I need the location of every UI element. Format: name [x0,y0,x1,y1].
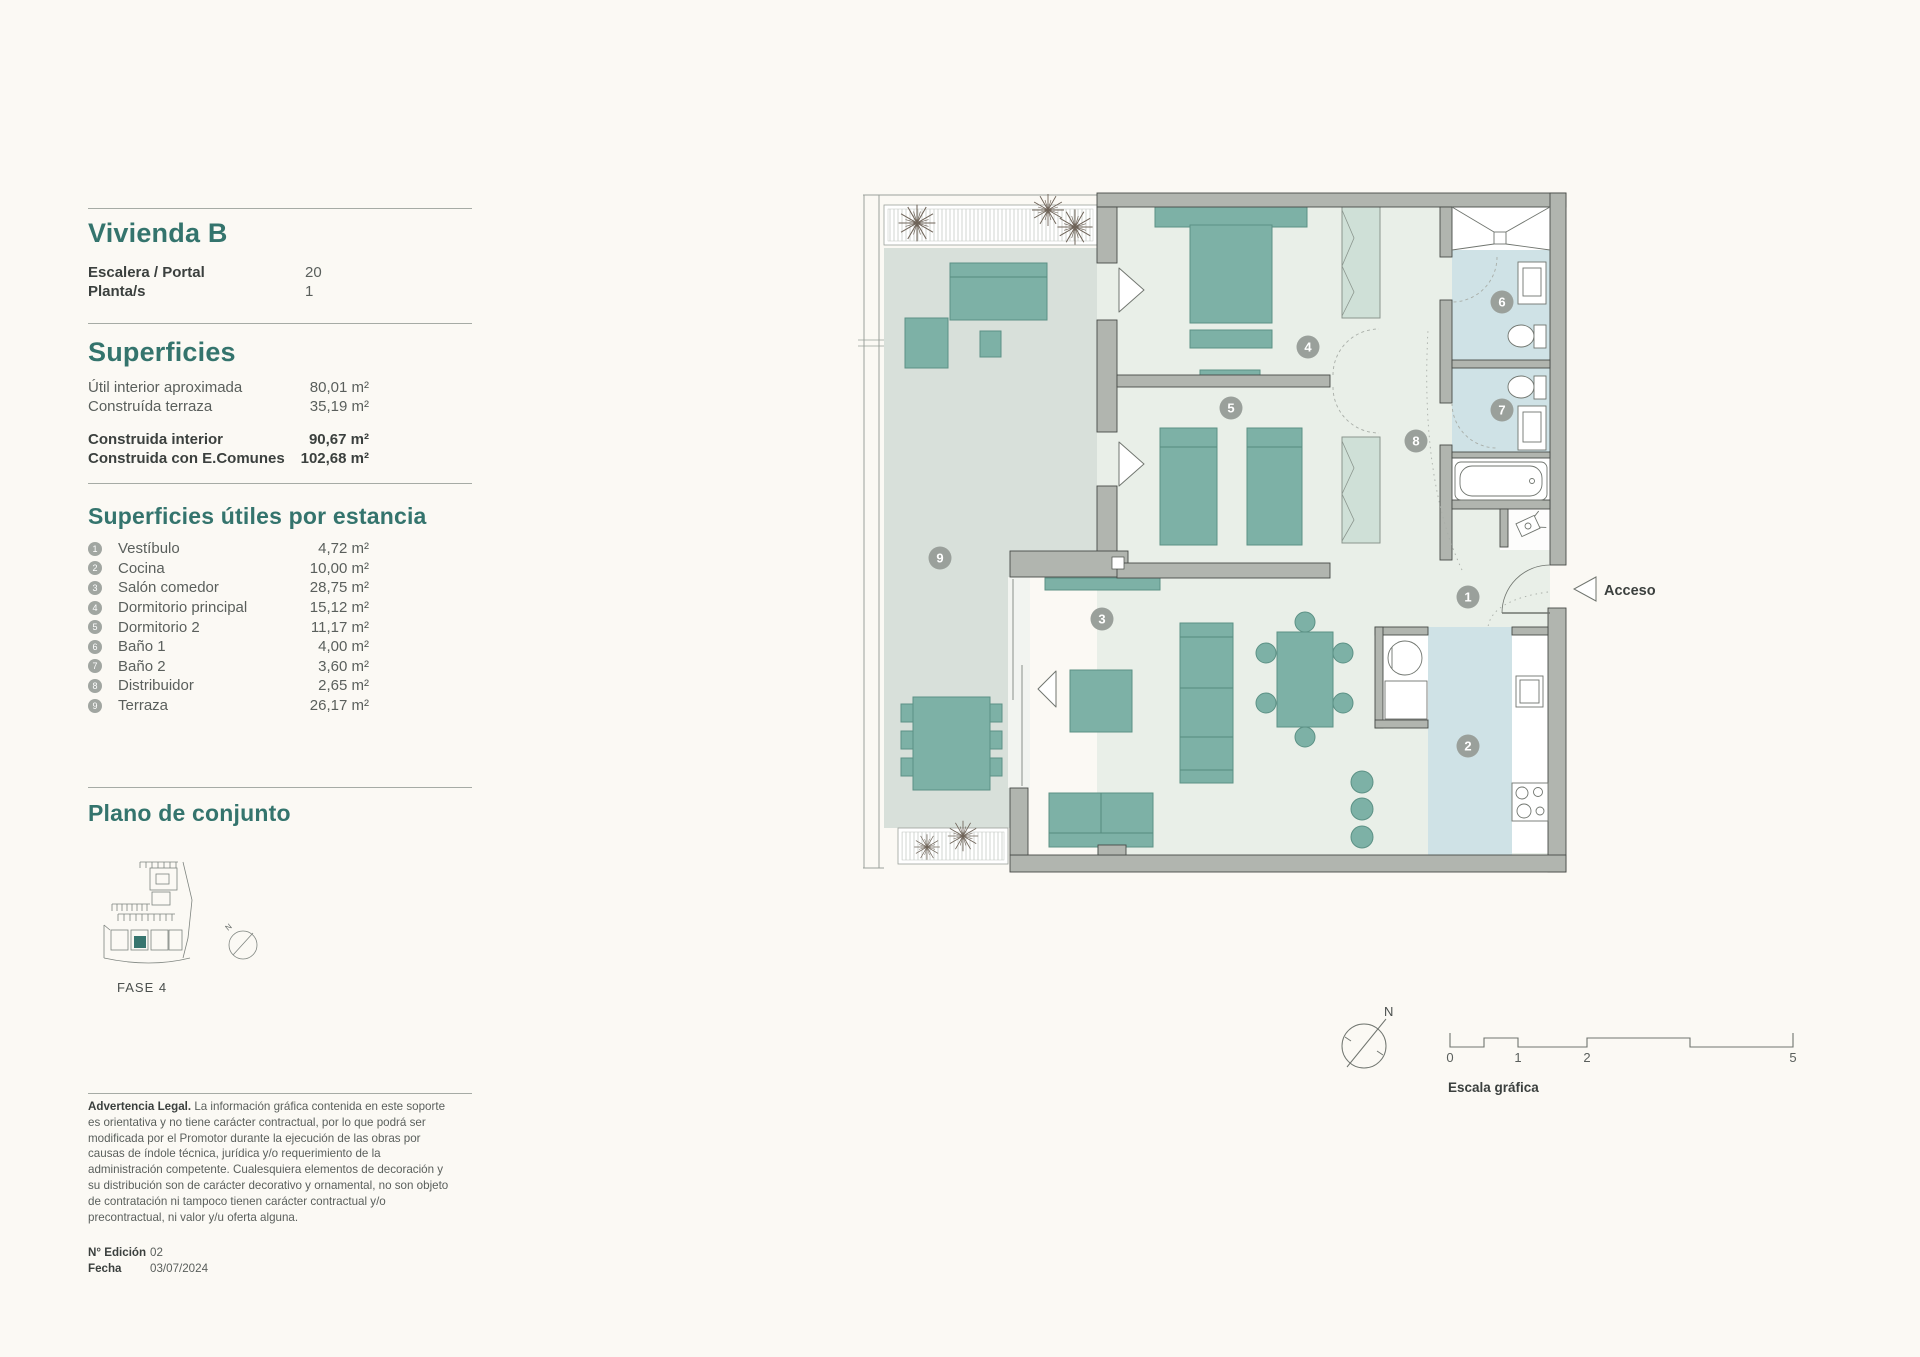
wall-step-notch [1112,557,1124,569]
surfaces-rows: Útil interior aproximada80,01 m² Constru… [88,378,369,416]
dining-chair [1295,612,1315,632]
room-label: Salón comedor [118,579,310,596]
svg-text:4: 4 [1304,340,1312,355]
info-label: Planta/s [88,282,305,301]
basin-bath2 [1518,406,1546,450]
wall-bed5-bottom [1117,563,1330,578]
surface-label: Construída terraza [88,397,212,416]
wall-left-b [1097,320,1117,432]
room-number-badge: 3 [88,581,102,595]
legal-disclaimer-title: Advertencia Legal. [88,1100,191,1113]
siteplan-boundary [183,862,192,958]
svg-text:8: 8 [1412,434,1419,449]
room-row: 4Dormitorio principal15,12 m² [88,598,369,618]
wall-corridor-a [1440,207,1452,257]
room-area: 4,72 m² [318,540,369,557]
planter-bottom [898,828,1008,864]
door-v-salon [1038,671,1056,707]
terrace-armchair [905,318,948,368]
floor-plan: 1 2 3 4 5 6 7 8 9 Acceso [830,180,1710,900]
room-row: 2Cocina10,00 m² [88,559,369,579]
dining-table [1277,632,1333,727]
svg-text:3: 3 [1098,612,1105,627]
wall-nook-top [1452,500,1550,509]
unit-title: Vivienda B [88,218,228,249]
room-marker: 7 [1491,399,1514,422]
wardrobe-bed4 [1342,205,1380,318]
scale-tick-label: 1 [1514,1050,1521,1065]
room-number-badge: 4 [88,601,102,615]
room-number-badge: 5 [88,620,102,634]
surface-value: 90,67 m² [309,430,369,449]
edition-label: N° Edición [88,1245,150,1261]
info-row: Escalera / Portal 20 [88,263,370,282]
room-row: 7Baño 23,60 m² [88,657,369,677]
siteplan-compass-label: N [224,922,234,933]
legal-disclaimer-text: La información gráfica contenida en este… [88,1100,448,1224]
brochure-page: { "sidebar": { "title": "Vivienda B", "i… [0,0,1920,1357]
room-area: 11,17 m² [311,619,369,636]
room-label: Dormitorio 2 [118,619,311,636]
siteplan-compass: N [224,922,257,959]
svg-text:1: 1 [1464,590,1471,605]
wall-utility-bottom [1375,720,1428,728]
room-area: 4,00 m² [318,638,369,655]
wall-bed-divider [1117,375,1330,387]
wall-left-a [1097,207,1117,263]
tv-sideboard [1045,578,1160,590]
dryer [1385,681,1427,719]
room-row: 1Vestíbulo4,72 m² [88,539,369,559]
scale-tick-label: 2 [1583,1050,1590,1065]
room-number-badge: 8 [88,679,102,693]
room-number-badge: 6 [88,640,102,654]
divider [88,787,472,788]
divider [88,483,472,484]
svg-text:5: 5 [1227,401,1234,416]
svg-text:9: 9 [936,551,943,566]
room-row: 3Salón comedor28,75 m² [88,578,369,598]
highlighted-unit [134,936,146,948]
room-label: Distribuidor [118,677,318,694]
terrace-chair [901,704,914,722]
wall-kitchen-top [1512,627,1548,635]
room-area: 15,12 m² [310,599,369,616]
divider [88,1093,472,1094]
toilet-bath2 [1508,376,1534,398]
wall-utility-left [1375,627,1383,728]
room-list: 1Vestíbulo4,72 m² 2Cocina10,00 m² 3Salón… [88,539,369,715]
room-label: Baño 1 [118,638,318,655]
info-value: 20 [305,263,370,282]
wall-nook-side [1500,509,1508,547]
north-compass-icon [1342,1019,1386,1068]
wall-corridor-c [1440,445,1452,560]
bed5-right [1247,428,1302,545]
stool [1351,771,1373,793]
bathtub [1455,462,1547,500]
info-value: 1 [305,282,370,301]
wall-salon-left [1010,788,1028,855]
toilet-bath1 [1508,325,1534,347]
wall-bathtub-divider [1452,452,1550,458]
scale-tick-label: 0 [1446,1050,1453,1065]
divider [88,208,472,209]
room-marker: 3 [1091,608,1114,631]
siteplan-heading: Plano de conjunto [88,800,291,827]
terrace-sofa [950,263,1047,320]
room-marker: 8 [1405,430,1428,453]
scale-title: Escala gráfica [1448,1080,1539,1095]
wall-right-lower [1548,608,1566,872]
room-label: Baño 2 [118,658,318,675]
room-label: Dormitorio principal [118,599,310,616]
edition-value: 03/07/2024 [150,1261,208,1277]
scale-tick-label: 5 [1789,1050,1796,1065]
wall-left-c [1097,486,1117,553]
terrace-dining-table [913,697,990,790]
terrace-chair [901,758,914,776]
room-marker: 1 [1457,586,1480,609]
room-number-badge: 9 [88,699,102,713]
coffee-table [1070,670,1132,732]
room-marker: 9 [929,547,952,570]
dining-chair [1256,693,1276,713]
room-number-badge: 2 [88,561,102,575]
siteplan-thumbnail: N [95,855,285,977]
terrace-chair [901,731,914,749]
svg-text:7: 7 [1498,403,1505,418]
wall-corridor-b [1440,300,1452,403]
access-arrow-icon [1574,577,1596,601]
svg-text:6: 6 [1498,295,1505,310]
dining-chair [1256,643,1276,663]
info-row: Planta/s 1 [88,282,370,301]
phase-label: FASE 4 [117,980,167,995]
washing-machine [1388,641,1422,675]
unit-info: Escalera / Portal 20 Planta/s 1 [88,263,370,301]
room-label: Vestíbulo [118,540,318,557]
dining-chair [1333,693,1353,713]
divider [88,323,472,324]
room-number-badge: 7 [88,659,102,673]
shower-drain [1494,232,1506,244]
info-label: Escalera / Portal [88,263,305,282]
terrace-chair [989,704,1002,722]
bed4-bench [1190,330,1272,348]
surface-value: 35,19 m² [310,397,369,416]
surface-value: 102,68 m² [301,449,369,468]
rooms-heading: Superficies útiles por estancia [88,503,427,530]
wall-right-upper [1550,193,1566,565]
dining-chair [1295,727,1315,747]
legal-disclaimer: Advertencia Legal. La información gráfic… [88,1099,456,1225]
edition-block: N° Edición02 Fecha03/07/2024 [88,1245,208,1276]
access-label: Acceso [1604,583,1656,599]
room-area: 10,00 m² [310,560,369,577]
room-row: 9Terraza26,17 m² [88,696,369,716]
terrace-chair [989,731,1002,749]
surface-label: Construida interior [88,430,223,449]
dining-chair [1333,643,1353,663]
access-callout: Acceso [1574,577,1656,601]
room-number-badge: 1 [88,542,102,556]
surface-label: Construida con E.Comunes [88,449,285,468]
bed4 [1190,225,1272,323]
room-row: 8Distribuidor2,65 m² [88,676,369,696]
room-marker: 6 [1491,291,1514,314]
room-label: Cocina [118,560,310,577]
sliding-door-track [1008,577,1030,788]
room-marker: 2 [1457,735,1480,758]
terrace-side-table [980,331,1001,357]
room-area: 3,60 m² [318,658,369,675]
chaise-sofa [1180,623,1233,783]
edition-label: Fecha [88,1261,150,1277]
scale-bar: 0 1 2 5 Escala gráfica [1446,1033,1796,1095]
room-label: Terraza [118,697,310,714]
room-row: 5Dormitorio 211,17 m² [88,617,369,637]
wall-step [1010,551,1128,577]
room-area: 28,75 m² [310,579,369,596]
surface-value: 80,01 m² [310,378,369,397]
terrace-chair [989,758,1002,776]
surfaces-bold-rows: Construida interior90,67 m² Construida c… [88,430,369,468]
room-area: 26,17 m² [310,697,369,714]
wall-bath-divider [1452,360,1550,368]
wall-top [1097,193,1566,207]
bed5-left [1160,428,1217,545]
room-row: 6Baño 14,00 m² [88,637,369,657]
stool [1351,798,1373,820]
compass-n-label: N [1384,1004,1393,1019]
edition-value: 02 [150,1245,163,1261]
room-area: 2,65 m² [318,677,369,694]
surfaces-heading: Superficies [88,337,236,368]
wall-bottom-notch [1098,845,1126,855]
bed4-headboard [1155,207,1307,227]
room-marker: 5 [1220,397,1243,420]
wall-bottom [1010,855,1566,872]
svg-text:2: 2 [1464,739,1471,754]
scale-bar-line [1450,1033,1793,1047]
room-marker: 4 [1297,336,1320,359]
scale-ticks: 0 1 2 5 [1446,1050,1796,1065]
surface-label: Útil interior aproximada [88,378,242,397]
plan-legend: N 0 1 2 5 Escala gráfica [1330,1000,1810,1105]
stool [1351,826,1373,848]
